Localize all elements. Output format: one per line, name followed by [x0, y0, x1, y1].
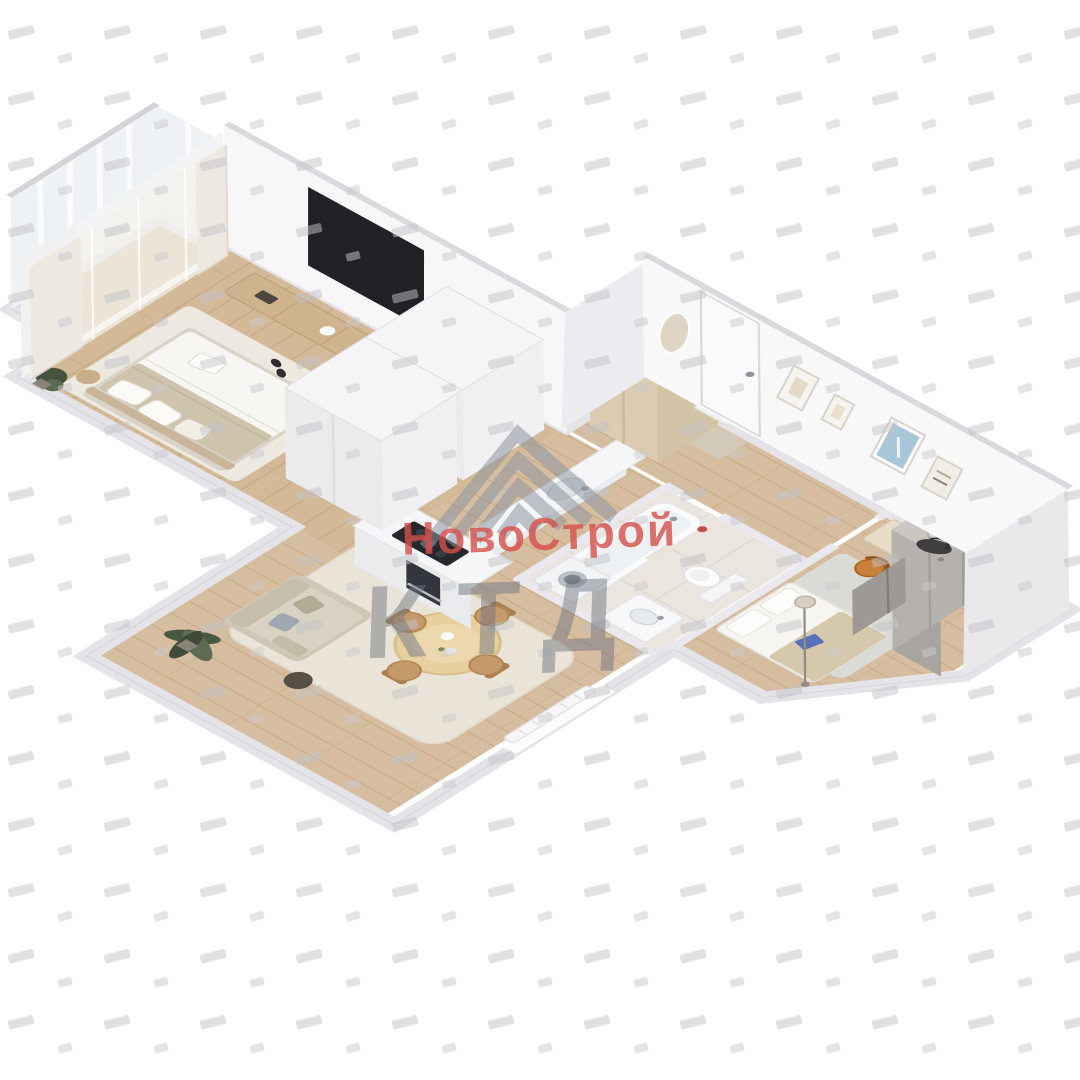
floor-plan-render: НовоСтрой КТД — [0, 0, 1080, 1080]
floor-plan-canvas: НовоСтрой КТД — [0, 0, 1080, 1080]
letters-watermark-text: КТД — [362, 556, 645, 682]
